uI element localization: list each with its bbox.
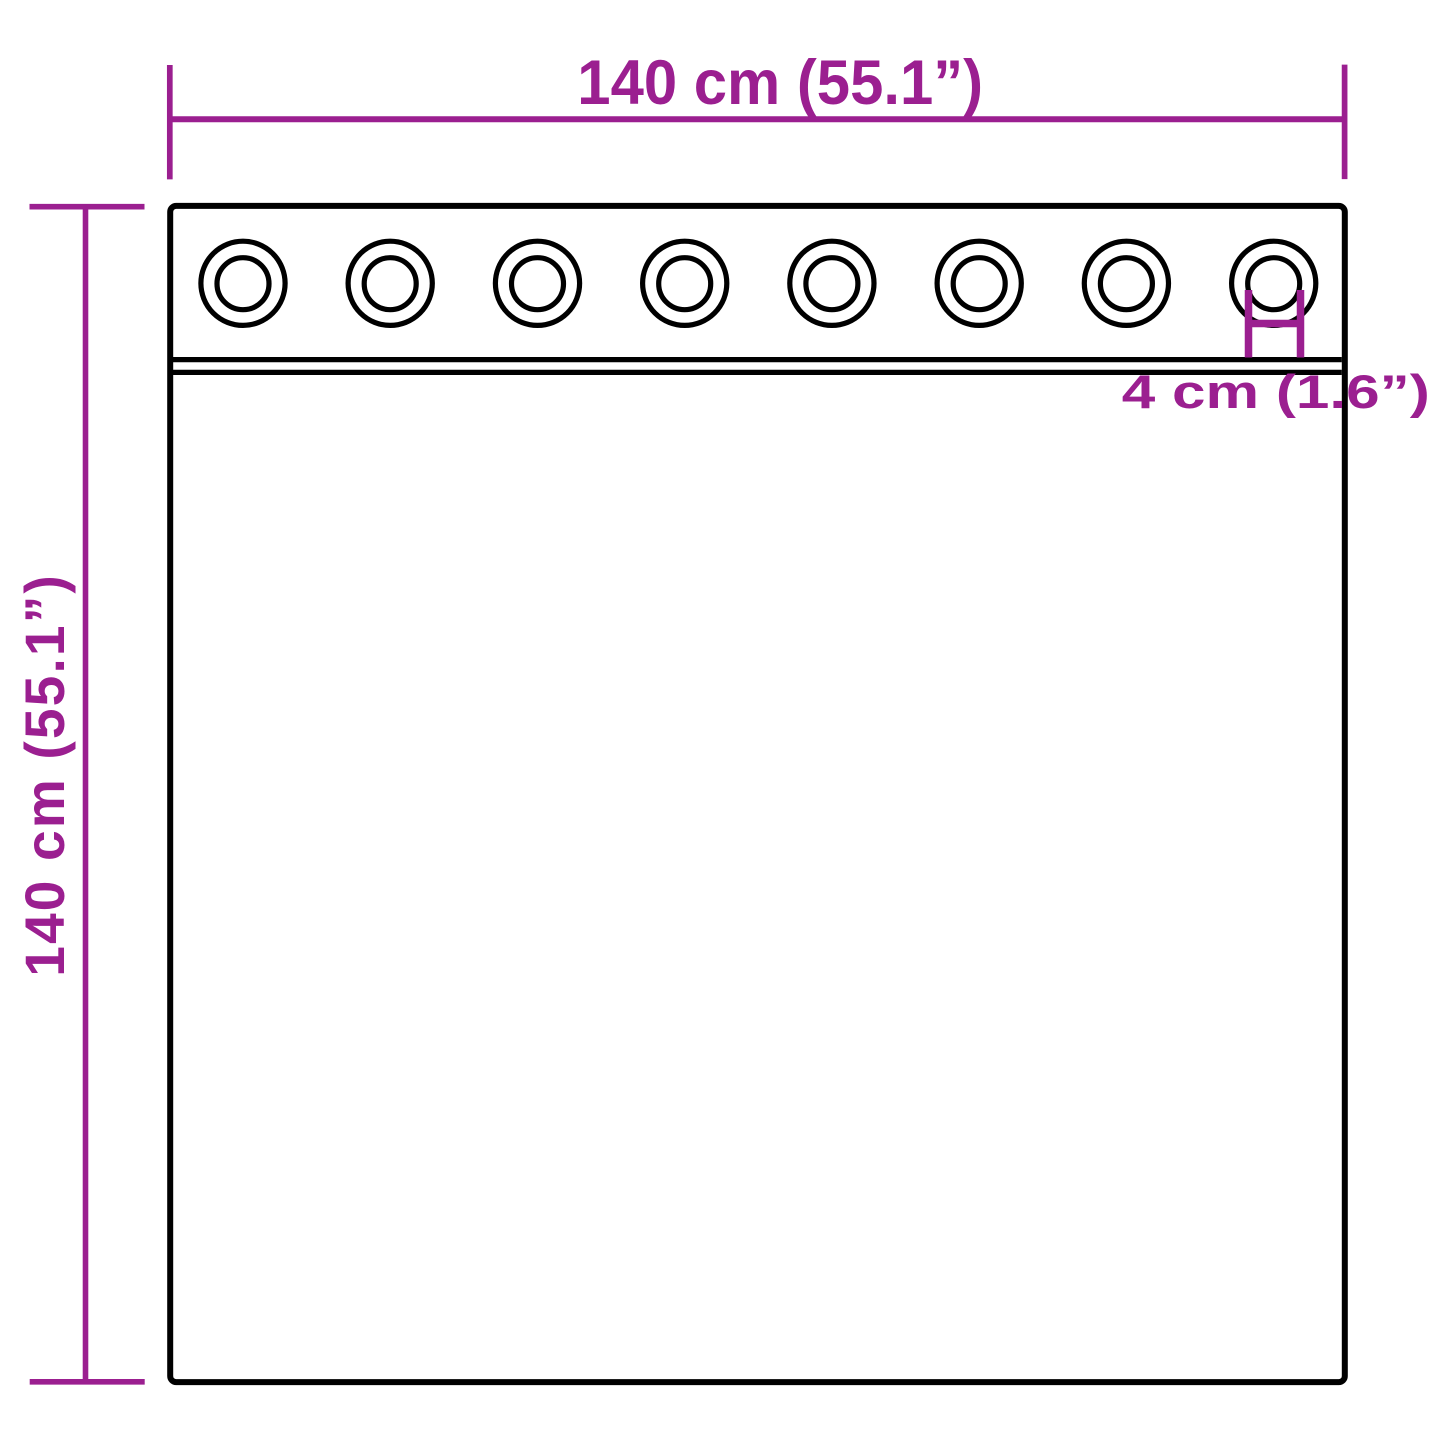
svg-text:140 cm (55.1”): 140 cm (55.1”) bbox=[14, 575, 76, 977]
svg-text:140 cm (55.1”): 140 cm (55.1”) bbox=[577, 48, 983, 118]
svg-text:4 cm (1.6”): 4 cm (1.6”) bbox=[1122, 366, 1430, 419]
